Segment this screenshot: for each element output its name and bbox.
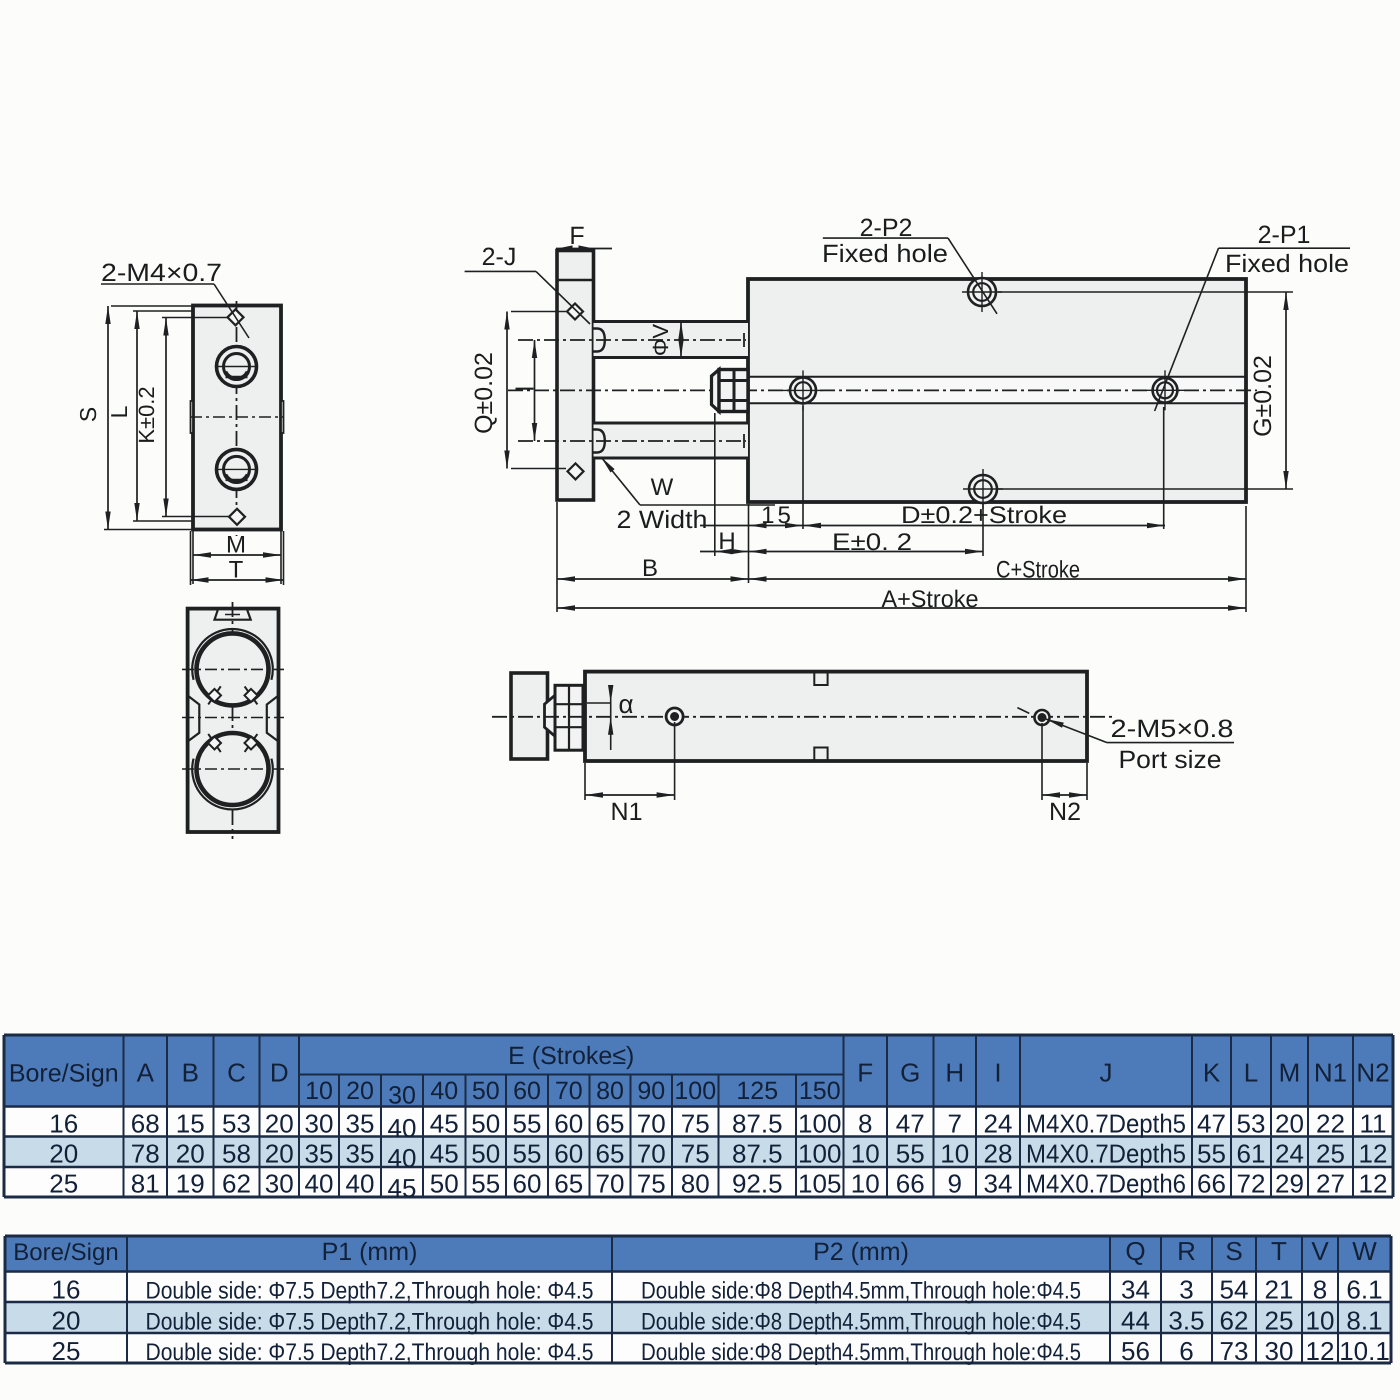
svg-text:B: B (182, 1058, 199, 1088)
svg-text:20: 20 (346, 1077, 374, 1105)
svg-text:80: 80 (681, 1169, 710, 1199)
svg-text:N2: N2 (1356, 1058, 1389, 1088)
svg-text:6.1: 6.1 (1346, 1275, 1382, 1305)
svg-text:100: 100 (798, 1139, 841, 1169)
svg-text:16: 16 (49, 1109, 78, 1139)
svg-text:A: A (137, 1058, 155, 1088)
svg-text:60: 60 (513, 1169, 542, 1199)
svg-text:81: 81 (131, 1169, 160, 1199)
svg-text:92.5: 92.5 (732, 1169, 783, 1199)
svg-text:40: 40 (430, 1077, 458, 1105)
svg-text:Double side: Φ7.5 Depth7.2,Thr: Double side: Φ7.5 Depth7.2,Through hole:… (146, 1339, 594, 1366)
svg-text:F: F (857, 1058, 873, 1088)
svg-text:20: 20 (176, 1139, 205, 1169)
svg-text:P1 (mm): P1 (mm) (322, 1238, 418, 1266)
svg-text:Double side: Φ7.5 Depth7.2,Thr: Double side: Φ7.5 Depth7.2,Through hole:… (146, 1278, 594, 1305)
svg-text:Double side:Φ8 Depth4.5mm,Thro: Double side:Φ8 Depth4.5mm,Through hole:Φ… (641, 1339, 1081, 1366)
svg-text:50: 50 (430, 1169, 459, 1199)
svg-text:55: 55 (513, 1109, 542, 1139)
svg-text:15: 15 (176, 1109, 205, 1139)
svg-text:S: S (1225, 1236, 1242, 1266)
svg-text:H: H (718, 528, 735, 555)
svg-text:27: 27 (1316, 1169, 1345, 1199)
svg-text:100: 100 (798, 1109, 841, 1139)
svg-text:55: 55 (896, 1139, 925, 1169)
svg-text:40: 40 (388, 1143, 417, 1173)
svg-text:B: B (642, 555, 658, 582)
svg-text:8: 8 (858, 1109, 872, 1139)
svg-text:40: 40 (346, 1169, 375, 1199)
svg-text:20: 20 (265, 1139, 294, 1169)
svg-text:45: 45 (430, 1109, 459, 1139)
svg-text:53: 53 (1237, 1109, 1266, 1139)
svg-text:61: 61 (1237, 1139, 1266, 1169)
svg-text:10: 10 (940, 1139, 969, 1169)
svg-text:10: 10 (851, 1169, 880, 1199)
svg-text:E (Stroke≤): E (Stroke≤) (508, 1042, 634, 1070)
svg-text:70: 70 (555, 1077, 583, 1105)
svg-text:2 Width: 2 Width (617, 506, 708, 534)
svg-text:W: W (1352, 1236, 1377, 1266)
svg-text:Bore/Sign: Bore/Sign (9, 1060, 119, 1088)
svg-text:35: 35 (346, 1109, 375, 1139)
svg-text:10: 10 (1306, 1306, 1335, 1336)
svg-text:N1: N1 (611, 798, 643, 826)
svg-text:Fixed hole: Fixed hole (822, 240, 948, 268)
svg-text:68: 68 (131, 1109, 160, 1139)
svg-text:W: W (651, 474, 674, 501)
svg-text:H: H (945, 1058, 964, 1088)
svg-text:C: C (227, 1058, 246, 1088)
svg-text:2-P2: 2-P2 (860, 214, 913, 242)
svg-text:54: 54 (1220, 1275, 1249, 1305)
svg-text:44: 44 (1121, 1306, 1150, 1336)
svg-text:12: 12 (1359, 1169, 1388, 1199)
svg-text:105: 105 (798, 1169, 841, 1199)
svg-text:24: 24 (1275, 1139, 1304, 1169)
svg-text:80: 80 (596, 1077, 624, 1105)
svg-text:M4X0.7Depth6: M4X0.7Depth6 (1026, 1169, 1186, 1199)
svg-text:2-P1: 2-P1 (1258, 221, 1311, 249)
svg-text:S: S (75, 407, 101, 422)
svg-text:24: 24 (984, 1109, 1013, 1139)
svg-text:2-M4×0.7: 2-M4×0.7 (101, 259, 222, 287)
svg-text:55: 55 (1197, 1139, 1226, 1169)
svg-text:J: J (1100, 1058, 1113, 1088)
svg-text:55: 55 (513, 1139, 542, 1169)
svg-text:62: 62 (222, 1169, 251, 1199)
svg-text:65: 65 (596, 1109, 625, 1139)
svg-text:47: 47 (896, 1109, 925, 1139)
svg-text:2-J: 2-J (482, 243, 517, 271)
svg-text:P2 (mm): P2 (mm) (813, 1238, 909, 1266)
svg-text:M: M (1279, 1058, 1301, 1088)
svg-text:22: 22 (1316, 1109, 1345, 1139)
svg-text:Q: Q (1125, 1236, 1145, 1266)
svg-text:30: 30 (388, 1082, 416, 1110)
svg-text:Double side:Φ8 Depth4.5mm,Thro: Double side:Φ8 Depth4.5mm,Through hole:Φ… (641, 1309, 1081, 1336)
svg-text:87.5: 87.5 (732, 1109, 783, 1139)
svg-text:V: V (1311, 1236, 1329, 1266)
svg-text:25: 25 (1316, 1139, 1345, 1169)
svg-text:21: 21 (1265, 1275, 1294, 1305)
svg-text:G: G (900, 1058, 920, 1088)
svg-text:78: 78 (131, 1139, 160, 1169)
svg-text:Q±0.02: Q±0.02 (470, 352, 498, 434)
svg-text:20: 20 (49, 1139, 78, 1169)
svg-text:125: 125 (736, 1077, 778, 1105)
svg-text:N2: N2 (1049, 798, 1081, 826)
svg-text:F: F (569, 222, 584, 250)
svg-text:12: 12 (1359, 1139, 1388, 1169)
svg-text:25: 25 (49, 1169, 78, 1199)
svg-text:75: 75 (681, 1109, 710, 1139)
svg-text:G±0.02: G±0.02 (1249, 355, 1277, 437)
svg-text:10.1: 10.1 (1339, 1336, 1390, 1366)
svg-text:25: 25 (52, 1336, 81, 1366)
svg-text:M4X0.7Depth5: M4X0.7Depth5 (1026, 1109, 1186, 1139)
svg-text:T: T (1271, 1236, 1287, 1266)
svg-text:9: 9 (948, 1169, 962, 1199)
svg-text:Fixed hole: Fixed hole (1225, 250, 1349, 278)
svg-text:E±0. 2: E±0. 2 (832, 529, 912, 556)
svg-text:20: 20 (1275, 1109, 1304, 1139)
svg-text:50: 50 (471, 1139, 500, 1169)
svg-text:65: 65 (596, 1139, 625, 1169)
svg-text:66: 66 (896, 1169, 925, 1199)
svg-text:12: 12 (1306, 1336, 1335, 1366)
svg-text:50: 50 (471, 1109, 500, 1139)
svg-text:Double side:Φ8 Depth4.5mm,Thro: Double side:Φ8 Depth4.5mm,Through hole:Φ… (641, 1278, 1081, 1305)
svg-text:40: 40 (388, 1113, 417, 1143)
svg-text:40: 40 (305, 1169, 334, 1199)
svg-text:60: 60 (554, 1109, 583, 1139)
svg-text:58: 58 (222, 1139, 251, 1169)
svg-text:70: 70 (637, 1109, 666, 1139)
svg-text:75: 75 (681, 1139, 710, 1169)
svg-text:90: 90 (637, 1077, 665, 1105)
svg-text:11: 11 (1360, 1109, 1387, 1139)
svg-text:35: 35 (305, 1139, 334, 1169)
svg-text:29: 29 (1275, 1169, 1304, 1199)
svg-text:Double side: Φ7.5 Depth7.2,Thr: Double side: Φ7.5 Depth7.2,Through hole:… (146, 1309, 594, 1336)
svg-text:35: 35 (346, 1139, 375, 1169)
svg-text:3.5: 3.5 (1168, 1306, 1204, 1336)
svg-text:56: 56 (1121, 1336, 1150, 1366)
svg-text:25: 25 (1265, 1306, 1294, 1336)
svg-text:20: 20 (52, 1306, 81, 1336)
svg-text:150: 150 (799, 1077, 841, 1105)
svg-text:6: 6 (1179, 1336, 1193, 1366)
svg-text:45: 45 (430, 1139, 459, 1169)
svg-text:A+Stroke: A+Stroke (882, 586, 979, 613)
svg-text:30: 30 (1265, 1336, 1294, 1366)
svg-text:65: 65 (554, 1169, 583, 1199)
svg-text:45: 45 (388, 1173, 417, 1203)
svg-text:100: 100 (674, 1077, 716, 1105)
svg-text:87.5: 87.5 (732, 1139, 783, 1169)
svg-text:10: 10 (851, 1139, 880, 1169)
svg-text:M4X0.7Depth5: M4X0.7Depth5 (1026, 1139, 1186, 1169)
svg-text:30: 30 (265, 1169, 294, 1199)
svg-text:72: 72 (1237, 1169, 1266, 1199)
svg-text:55: 55 (471, 1169, 500, 1199)
svg-text:C+Stroke: C+Stroke (996, 557, 1080, 584)
svg-text:47: 47 (1197, 1109, 1226, 1139)
svg-text:62: 62 (1220, 1306, 1249, 1336)
svg-text:Bore/Sign: Bore/Sign (13, 1239, 118, 1266)
svg-text:N1: N1 (1314, 1058, 1347, 1088)
svg-text:α: α (618, 689, 633, 719)
svg-text:M: M (226, 532, 246, 559)
svg-text:D: D (270, 1058, 289, 1088)
svg-text:15: 15 (761, 502, 794, 529)
svg-text:30: 30 (305, 1109, 334, 1139)
svg-text:D±0.2+Stroke: D±0.2+Stroke (901, 502, 1067, 529)
svg-text:60: 60 (513, 1077, 541, 1105)
svg-text:75: 75 (637, 1169, 666, 1199)
svg-text:50: 50 (472, 1077, 500, 1105)
svg-text:16: 16 (52, 1275, 81, 1305)
svg-text:28: 28 (984, 1139, 1013, 1169)
svg-text:53: 53 (222, 1109, 251, 1139)
svg-text:L: L (1244, 1058, 1258, 1088)
svg-text:66: 66 (1197, 1169, 1226, 1199)
svg-text:K: K (1203, 1058, 1221, 1088)
svg-text:70: 70 (596, 1169, 625, 1199)
svg-text:19: 19 (176, 1169, 205, 1199)
svg-text:34: 34 (1121, 1275, 1150, 1305)
svg-text:K±0.2: K±0.2 (134, 386, 159, 443)
svg-text:3: 3 (1179, 1275, 1193, 1305)
svg-text:R: R (1177, 1236, 1196, 1266)
svg-text:34: 34 (984, 1169, 1013, 1199)
svg-text:70: 70 (637, 1139, 666, 1169)
svg-text:7: 7 (948, 1109, 962, 1139)
svg-text:ΦV: ΦV (648, 324, 673, 357)
svg-text:2-M5×0.8: 2-M5×0.8 (1111, 715, 1234, 743)
svg-text:Port size: Port size (1119, 746, 1222, 774)
svg-text:8.1: 8.1 (1346, 1306, 1382, 1336)
svg-text:L: L (106, 405, 132, 418)
svg-text:73: 73 (1220, 1336, 1249, 1366)
svg-text:20: 20 (265, 1109, 294, 1139)
svg-text:60: 60 (554, 1139, 583, 1169)
svg-text:T: T (229, 557, 244, 584)
svg-text:10: 10 (305, 1077, 333, 1105)
svg-text:I: I (994, 1058, 1001, 1088)
svg-text:8: 8 (1313, 1275, 1327, 1305)
